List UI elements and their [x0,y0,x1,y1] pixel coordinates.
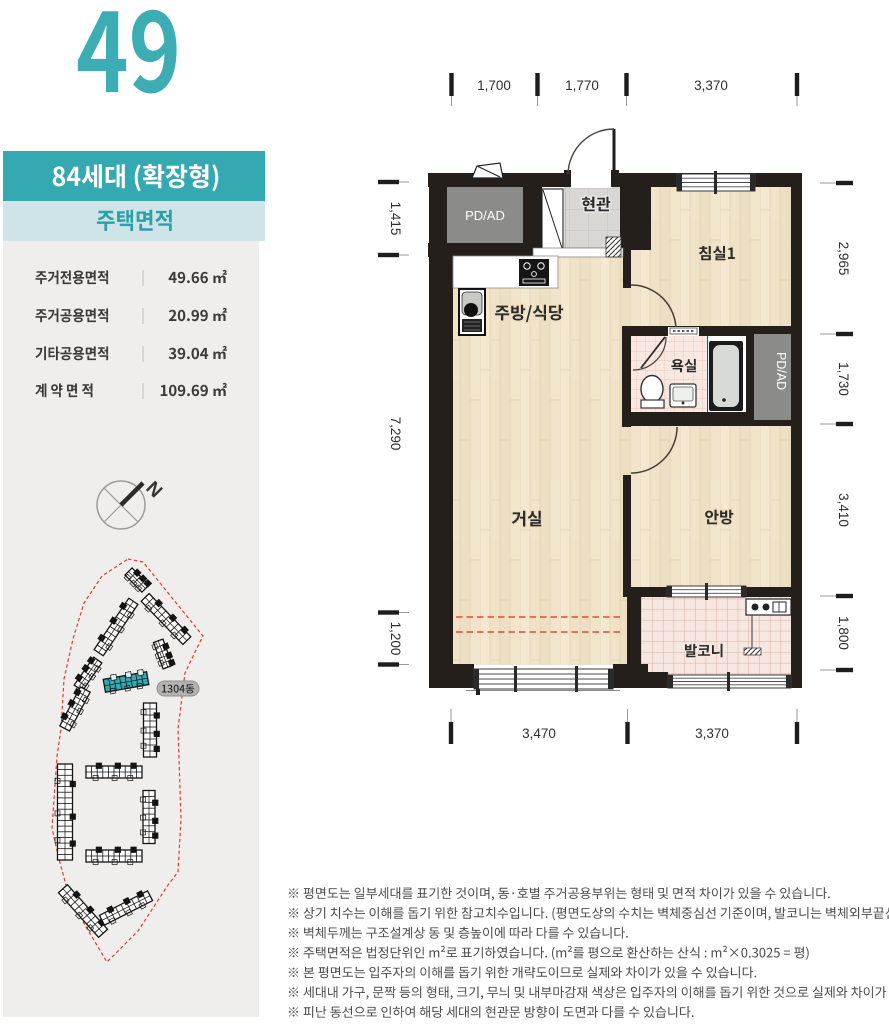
svg-text:1,415: 1,415 [388,202,403,236]
svg-text:1,200: 1,200 [388,622,403,656]
svg-text:1,700: 1,700 [477,78,511,93]
svg-text:1,730: 1,730 [836,362,851,396]
svg-text:1,800: 1,800 [836,616,851,650]
svg-text:7,290: 7,290 [388,417,403,451]
svg-text:PD/AD: PD/AD [465,208,505,223]
svg-text:1,770: 1,770 [565,78,599,93]
svg-text:PD/AD: PD/AD [774,352,788,390]
svg-text:N: N [141,478,166,503]
svg-text:3,470: 3,470 [522,726,556,741]
svg-text:2,965: 2,965 [836,242,851,276]
svg-text:3,370: 3,370 [695,726,729,741]
svg-text:3,370: 3,370 [694,78,728,93]
svg-text:3,410: 3,410 [836,493,851,527]
